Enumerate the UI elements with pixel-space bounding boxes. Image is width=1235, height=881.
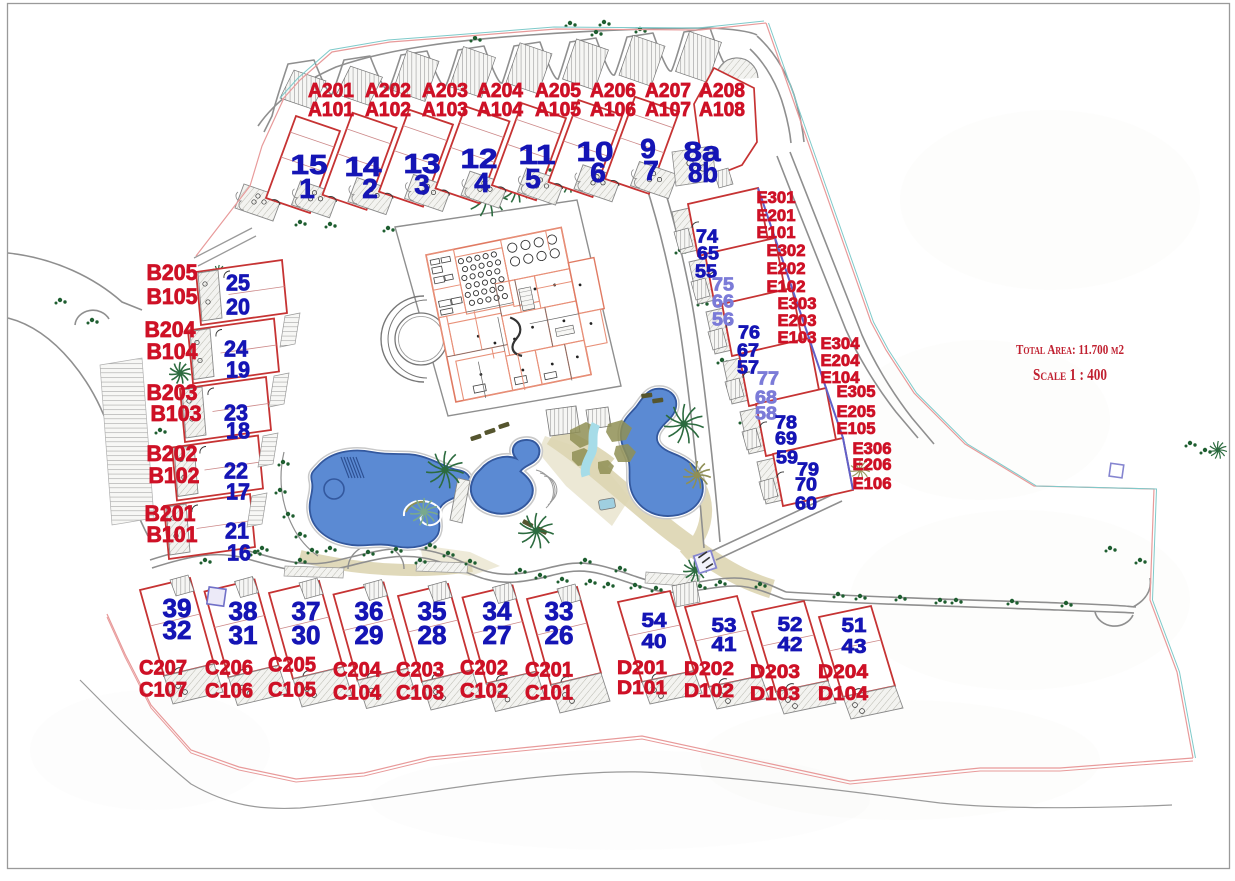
svg-text:16: 16 — [227, 539, 251, 565]
svg-text:C106: C106 — [205, 679, 253, 703]
svg-text:31: 31 — [229, 622, 258, 650]
svg-text:20: 20 — [226, 293, 250, 319]
svg-text:E105: E105 — [837, 419, 876, 438]
svg-text:4: 4 — [474, 167, 490, 198]
svg-text:A104: A104 — [477, 99, 524, 121]
svg-text:E101: E101 — [757, 223, 796, 242]
svg-text:B101: B101 — [147, 522, 198, 547]
svg-text:E103: E103 — [778, 328, 817, 347]
svg-text:1: 1 — [299, 173, 315, 204]
svg-text:3: 3 — [414, 169, 430, 200]
svg-text:57: 57 — [737, 358, 759, 378]
svg-text:C204: C204 — [333, 658, 381, 682]
svg-text:E305: E305 — [837, 382, 876, 401]
svg-text:C207: C207 — [139, 656, 187, 680]
svg-text:E202: E202 — [767, 259, 806, 278]
svg-text:32: 32 — [163, 617, 192, 645]
svg-text:Scale 1 : 400: Scale 1 : 400 — [1033, 365, 1107, 384]
svg-text:C203: C203 — [396, 658, 444, 682]
svg-text:A103: A103 — [422, 99, 468, 121]
svg-text:54: 54 — [642, 610, 668, 632]
svg-text:58: 58 — [755, 404, 777, 424]
svg-text:8b: 8b — [688, 157, 718, 188]
svg-text:C206: C206 — [205, 656, 253, 680]
svg-text:40: 40 — [642, 631, 667, 653]
svg-text:C201: C201 — [525, 658, 573, 682]
svg-text:19: 19 — [226, 356, 250, 382]
svg-text:66: 66 — [712, 292, 734, 312]
svg-text:B205: B205 — [147, 260, 198, 285]
svg-text:E302: E302 — [767, 241, 806, 260]
svg-text:D202: D202 — [684, 658, 734, 680]
svg-text:17: 17 — [226, 478, 250, 504]
svg-text:52: 52 — [778, 614, 803, 636]
svg-text:59: 59 — [776, 448, 798, 468]
svg-text:29: 29 — [355, 622, 384, 650]
svg-text:A106: A106 — [590, 99, 636, 121]
svg-text:D102: D102 — [684, 680, 734, 702]
svg-text:D203: D203 — [750, 661, 800, 683]
svg-text:Total Area: 11.700 м2: Total Area: 11.700 м2 — [1016, 343, 1124, 358]
svg-text:C202: C202 — [460, 656, 508, 680]
svg-text:30: 30 — [292, 622, 321, 650]
svg-text:76: 76 — [738, 323, 760, 343]
svg-text:A108: A108 — [699, 99, 745, 121]
svg-text:42: 42 — [778, 634, 803, 656]
svg-text:7: 7 — [643, 155, 659, 186]
svg-text:2: 2 — [362, 173, 378, 204]
svg-text:18: 18 — [226, 417, 250, 443]
svg-text:5: 5 — [525, 163, 541, 194]
svg-text:28: 28 — [418, 622, 447, 650]
svg-text:C205: C205 — [268, 653, 316, 677]
svg-text:D101: D101 — [617, 677, 667, 699]
svg-text:65: 65 — [697, 244, 719, 264]
svg-text:B102: B102 — [149, 463, 200, 488]
svg-text:B105: B105 — [147, 284, 198, 309]
svg-text:E206: E206 — [853, 455, 892, 474]
svg-text:A107: A107 — [645, 99, 691, 121]
svg-text:43: 43 — [842, 636, 867, 658]
svg-text:A101: A101 — [308, 99, 354, 121]
svg-text:E106: E106 — [853, 474, 892, 493]
svg-text:C105: C105 — [268, 678, 316, 702]
svg-text:41: 41 — [712, 634, 737, 656]
svg-text:C107: C107 — [139, 678, 187, 702]
svg-text:B103: B103 — [151, 401, 202, 426]
svg-text:D104: D104 — [818, 683, 868, 705]
svg-text:60: 60 — [795, 494, 817, 514]
svg-text:C103: C103 — [396, 681, 444, 705]
svg-text:77: 77 — [757, 369, 779, 389]
svg-text:D204: D204 — [818, 661, 868, 683]
svg-text:70: 70 — [795, 475, 817, 495]
svg-text:27: 27 — [483, 622, 512, 650]
svg-text:56: 56 — [712, 310, 734, 330]
svg-text:A105: A105 — [535, 99, 581, 121]
svg-text:E301: E301 — [757, 188, 796, 207]
svg-text:25: 25 — [226, 269, 250, 295]
svg-text:51: 51 — [842, 615, 867, 637]
svg-text:C101: C101 — [525, 681, 573, 705]
svg-text:A102: A102 — [365, 99, 411, 121]
svg-text:C102: C102 — [460, 679, 508, 703]
svg-text:26: 26 — [545, 622, 574, 650]
svg-text:B104: B104 — [147, 339, 199, 364]
svg-text:C104: C104 — [333, 681, 381, 705]
svg-text:D103: D103 — [750, 683, 800, 705]
svg-text:69: 69 — [775, 429, 797, 449]
svg-text:D201: D201 — [617, 657, 667, 679]
svg-text:6: 6 — [590, 157, 606, 188]
